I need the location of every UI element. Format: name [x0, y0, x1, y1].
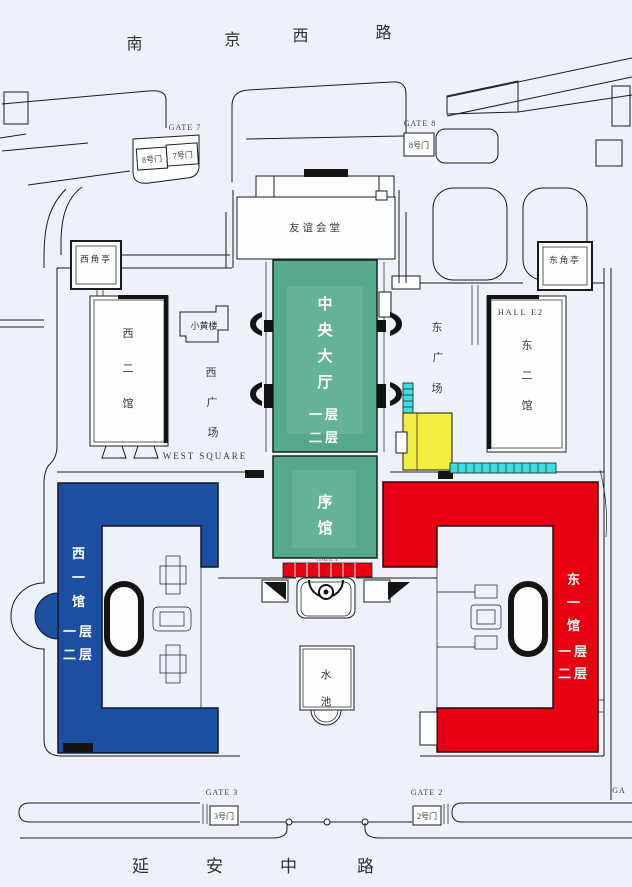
small-yellow-building-label: 小黄楼	[190, 320, 217, 331]
road-curb	[2, 91, 166, 128]
entrance-mark	[264, 320, 273, 332]
garden-shape	[160, 566, 186, 584]
wall	[598, 700, 604, 712]
roadside-structure	[612, 86, 630, 126]
gate-8-label: GATE 8	[404, 119, 436, 128]
gate-7-door-label: 7号门	[172, 149, 193, 160]
small-yellow-building: 小黄楼	[180, 306, 228, 342]
friendship-hall-annex	[376, 191, 387, 200]
road-curb	[232, 82, 406, 182]
gate-post	[444, 804, 448, 824]
east-courtyard-step	[420, 712, 437, 745]
fountain-mark	[250, 382, 262, 406]
west-hall-1-char: 一	[72, 570, 88, 585]
gate-3-label: GATE 3	[206, 788, 238, 797]
east-hall-2-edge	[487, 295, 539, 299]
west-square-char: 西	[206, 367, 217, 379]
north-road: 南 京 西 路 GATE 7 8号门 7号门 GATE 8 8号门	[0, 24, 632, 185]
wall-mark	[63, 743, 93, 752]
east-square-char: 广	[433, 351, 444, 364]
gate-2-door-label: 2号门	[417, 811, 437, 821]
friendship-hall-label: 友谊会堂	[289, 221, 343, 234]
central-hall-char: 央	[317, 321, 333, 339]
road-curb	[28, 171, 130, 185]
west-hall-2-char: 馆	[123, 396, 134, 410]
pavilion-outline	[538, 242, 592, 290]
wall	[600, 470, 607, 537]
west-hall-1: 西 一 馆 一层 二层	[35, 483, 218, 753]
road-block	[447, 81, 518, 114]
west-hall-2-char: 西	[123, 328, 134, 340]
road-curb	[447, 77, 632, 116]
east-hall-2-edge	[487, 299, 491, 449]
garden-shape	[471, 605, 501, 629]
road-curb	[19, 803, 200, 822]
west-hall-1-char: 馆	[72, 594, 88, 609]
central-hall-floor2: 二层	[309, 430, 341, 445]
north-road-char: 西	[292, 28, 309, 45]
east-hall-1: 东 一 馆 一层 二层	[383, 482, 598, 752]
road-curb	[0, 134, 26, 138]
west-square-en-label: WEST SQUARE	[163, 451, 248, 461]
west-hall-1-apse	[35, 593, 58, 639]
south-road-char: 安	[206, 857, 224, 876]
east-hall-1-floor1: 一层	[558, 644, 590, 659]
main-gate-steps	[283, 563, 372, 577]
south-road-char: 路	[357, 857, 375, 876]
wall	[399, 190, 406, 283]
road-curb	[20, 823, 287, 838]
garden-shape	[475, 636, 497, 649]
garden-shape	[477, 610, 495, 624]
roadside-structure	[596, 140, 622, 166]
east-courtyard-fountain	[511, 584, 545, 654]
courtyard-line	[437, 592, 475, 647]
east-courtyard-garden	[471, 585, 501, 649]
gate-3: GATE 3 3号门	[206, 788, 238, 825]
east-hall-2-char: 二	[522, 370, 533, 382]
gate-2-label: GATE 2	[411, 788, 443, 797]
south-road-char: 延	[132, 857, 150, 876]
south-road-char: 中	[280, 857, 298, 876]
gate-post	[203, 804, 207, 824]
west-square-char: 场	[208, 425, 219, 439]
side-structure	[379, 292, 391, 317]
side-structure	[396, 432, 407, 453]
west-corner-pavilion: 西角亭	[71, 241, 121, 289]
gate-dome-center	[324, 590, 329, 595]
central-hall-char: 厅	[317, 374, 332, 391]
garden-shape	[166, 645, 180, 683]
garden-shape	[475, 585, 497, 598]
friendship-hall-wing	[256, 176, 274, 197]
site-map: 南 京 西 路 GATE 7 8号门 7号门 GATE 8 8号门	[0, 0, 632, 887]
fountain-mark	[390, 382, 402, 406]
east-square-char: 场	[432, 381, 443, 395]
gate-7: GATE 7 8号门 7号门	[133, 123, 201, 183]
central-hall-floor1: 一层	[309, 407, 341, 422]
preface-hall-char: 序	[317, 493, 332, 511]
west-hall-1-floor1: 一层	[63, 624, 95, 639]
gate-7-label: GATE 7	[169, 123, 201, 132]
east-hall-2-char: 馆	[522, 398, 533, 412]
wall-mark	[245, 470, 264, 478]
site-map-page: 南 京 西 路 GATE 7 8号门 7号门 GATE 8 8号门	[0, 0, 632, 887]
east-hall-1-char: 馆	[567, 618, 583, 633]
garden-shape	[153, 607, 191, 631]
garden-shape	[160, 612, 184, 626]
friendship-hall-mark	[304, 169, 348, 177]
yellow-ramp	[403, 413, 452, 470]
gate-7-door-label: 8号门	[142, 153, 163, 164]
west-hall-2-char: 二	[123, 363, 134, 375]
pavilion-outline	[71, 241, 121, 289]
gate-3-door-label: 3号门	[214, 811, 234, 821]
road-curb	[452, 803, 632, 822]
north-road-char: 路	[375, 24, 392, 42]
east-hall-1-block	[383, 482, 598, 752]
east-square: 东 广 场	[432, 321, 444, 395]
central-hall: 中 央 大 厅 一层 二层	[264, 260, 391, 452]
east-square-char: 东	[432, 321, 443, 334]
wall	[226, 190, 233, 268]
gate-8: GATE 8 8号门	[404, 119, 498, 163]
cyan-corridor-vertical	[403, 383, 413, 413]
north-road-char: 南	[126, 35, 143, 53]
friendship-hall-stage	[273, 176, 380, 198]
west-garden-walls	[0, 187, 264, 756]
gate-8-island	[436, 129, 498, 163]
east-hall-2-char: 东	[522, 339, 533, 352]
pool-char: 水	[321, 669, 332, 681]
fountain-mark	[250, 312, 262, 336]
east-hall-2: HALL E2 东 二 馆	[472, 285, 566, 452]
main-gate-label: GATE 1	[316, 556, 337, 563]
south-road: GATE 3 3号门 GATE 2 2号门 GA 延 安 中 路	[19, 786, 632, 876]
garden-bed	[433, 188, 507, 280]
east-corner-pavilion: 东角亭	[538, 242, 592, 290]
wall	[97, 289, 103, 296]
entrance-mark	[264, 384, 273, 408]
entrance-mark	[377, 384, 386, 408]
west-hall-2-edge	[118, 295, 168, 299]
central-hall-char: 大	[317, 347, 332, 365]
gate-8-door-label: 8号门	[409, 140, 429, 150]
east-hall-2-en-label: HALL E2	[498, 308, 544, 317]
road-curb	[44, 189, 66, 268]
preface-hall-char: 馆	[317, 519, 332, 537]
wall	[472, 285, 478, 345]
west-hall-2-steps	[102, 446, 158, 458]
west-pavilion-label: 西角亭	[80, 254, 112, 264]
gate-wing	[364, 580, 390, 602]
preface-hall: 序 馆	[273, 456, 377, 558]
road-curb	[447, 58, 632, 97]
central-hall-char: 中	[317, 295, 332, 313]
west-hall-1-floor2: 二层	[63, 647, 95, 662]
road-curb	[365, 823, 632, 838]
north-road-char: 京	[224, 31, 241, 49]
gate-east-label: GA	[612, 786, 626, 795]
pool-char: 池	[321, 695, 332, 708]
east-pavilion-label: 东角亭	[549, 255, 581, 265]
west-courtyard-fountain	[107, 584, 141, 654]
east-hall-1-char: 一	[567, 595, 583, 610]
road-dot	[324, 819, 330, 825]
west-square-char: 广	[207, 396, 218, 409]
west-hall-2: 西 二 馆	[90, 295, 168, 458]
west-courtyard-garden	[153, 556, 191, 683]
garden-shape	[160, 655, 186, 673]
entrance-mark	[377, 320, 386, 332]
road-curb	[246, 136, 404, 139]
west-hall-1-char: 西	[72, 546, 88, 561]
pool-apse	[311, 710, 341, 725]
east-hall-1-char: 东	[567, 572, 583, 587]
west-hall-2-edge	[164, 299, 168, 443]
gate-ramp-mark	[388, 582, 410, 600]
gate-2: GATE 2 2号门	[411, 788, 443, 825]
west-square: 西 广 场 WEST SQUARE	[163, 367, 248, 461]
road-curb	[2, 143, 88, 151]
wall	[0, 320, 44, 327]
roadside-structure	[4, 92, 28, 124]
fountain-mark	[390, 312, 402, 336]
east-hall-1-floor2: 二层	[558, 666, 590, 681]
garden-shape	[166, 556, 180, 594]
pool: 水 池	[300, 646, 354, 725]
